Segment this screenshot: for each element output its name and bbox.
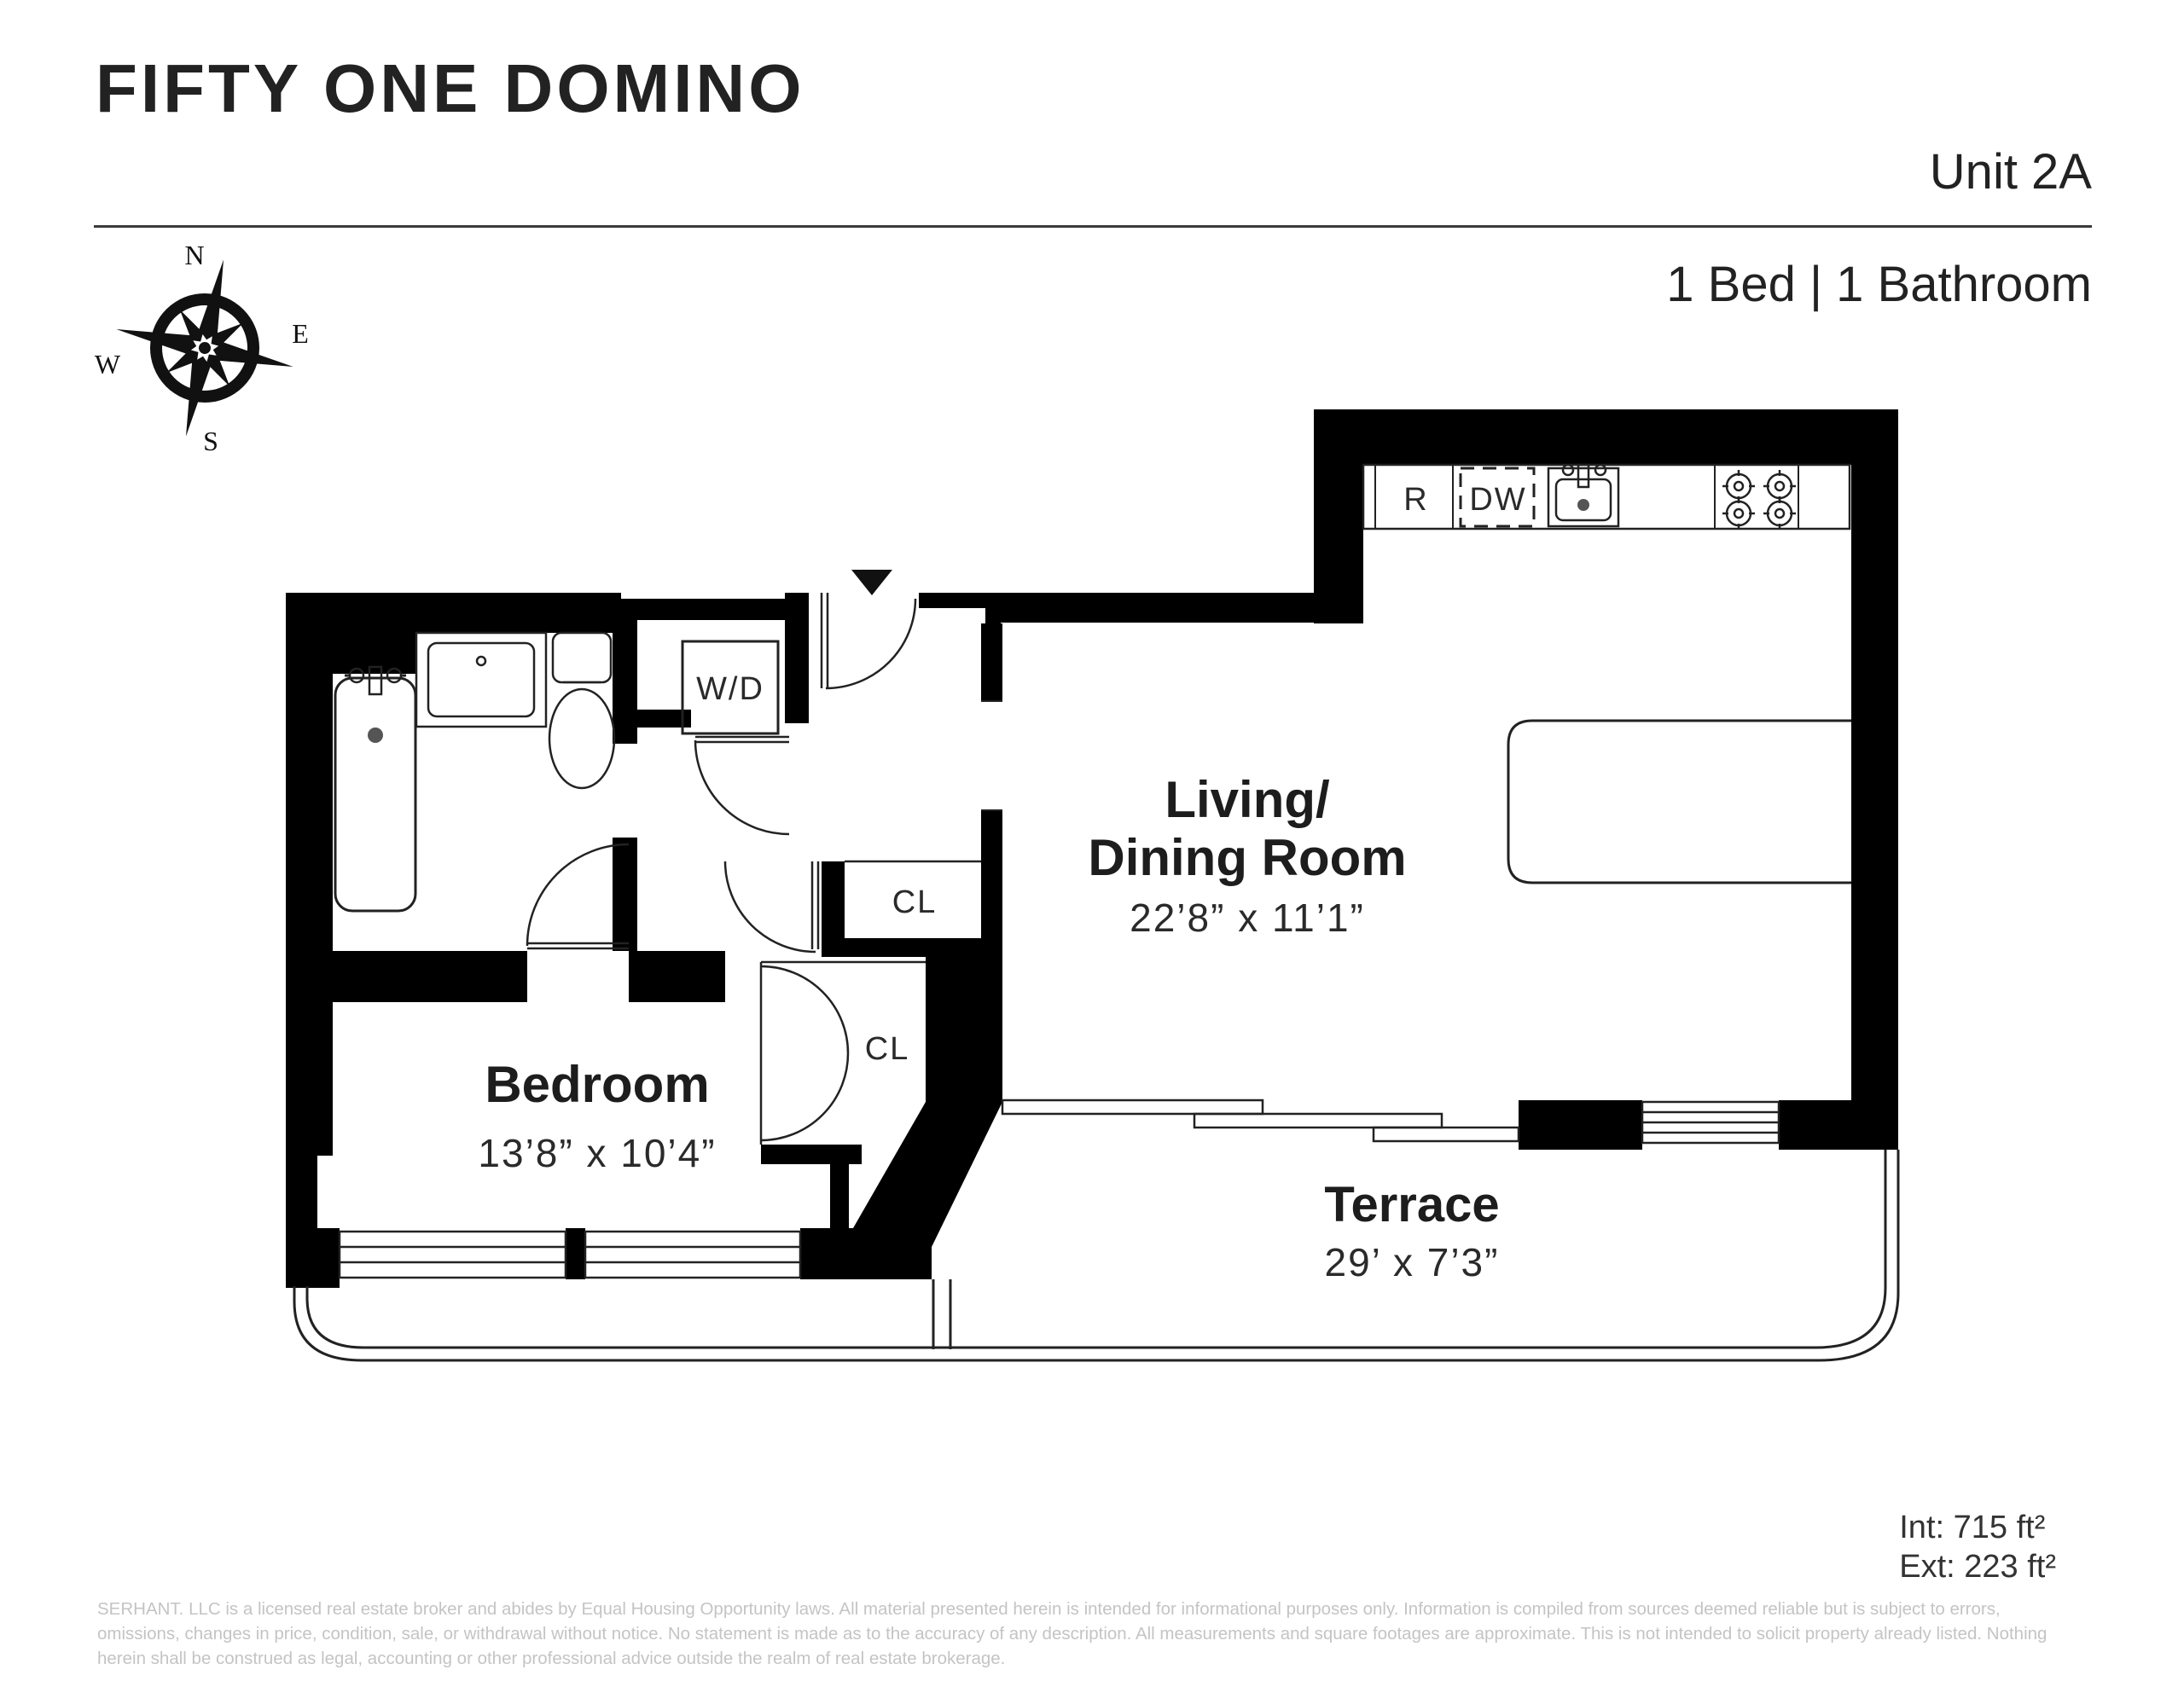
living-room-dims: 22’8” x 11’1” bbox=[1130, 896, 1365, 940]
kitchen-sink-icon bbox=[1548, 465, 1618, 526]
square-footage: Int: 715 ft² Ext: 223 ft² bbox=[1899, 1508, 2056, 1586]
bathroom-sink-icon bbox=[416, 633, 546, 727]
disclaimer-line-3: herein shall be construed as legal, acco… bbox=[97, 1646, 2094, 1671]
kitchen-island bbox=[1508, 721, 1851, 883]
bedroom-label: Bedroom bbox=[485, 1056, 709, 1113]
compass-east-label: E bbox=[292, 318, 309, 349]
dishwasher-label: DW bbox=[1469, 482, 1526, 518]
terrace-outline bbox=[294, 1150, 1898, 1360]
bedroom-dims: 13’8” x 10’4” bbox=[478, 1131, 716, 1175]
entry-arrow-icon bbox=[851, 570, 892, 595]
floorplan-drawing: N E W S bbox=[0, 0, 2184, 1687]
exterior-area: Ext: 223 ft² bbox=[1899, 1547, 2056, 1586]
compass-north-label: N bbox=[184, 240, 204, 270]
closet2-double-doors bbox=[761, 966, 848, 1140]
floorplan-page: FIFTY ONE DOMINO Unit 2A 1 Bed | 1 Bathr… bbox=[0, 0, 2184, 1687]
closet1-label: CL bbox=[892, 884, 938, 920]
entry-door bbox=[822, 593, 915, 688]
wd-door bbox=[695, 737, 789, 834]
toilet-icon bbox=[549, 633, 614, 788]
interior-area: Int: 715 ft² bbox=[1899, 1508, 2056, 1547]
bedroom-door bbox=[725, 861, 818, 952]
compass-west-label: W bbox=[95, 349, 121, 380]
living-window-sliders bbox=[1002, 1100, 1779, 1143]
washer-dryer-label: W/D bbox=[696, 671, 764, 707]
closet2-label: CL bbox=[865, 1031, 910, 1067]
legal-disclaimer: SERHANT. LLC is a licensed real estate b… bbox=[97, 1597, 2094, 1671]
stove-burners-icon bbox=[1722, 470, 1796, 530]
compass-south-label: S bbox=[203, 426, 218, 456]
refrigerator-label: R bbox=[1403, 482, 1428, 518]
disclaimer-line-2: omissions, changes in price, condition, … bbox=[97, 1621, 2094, 1646]
living-room-label-line2: Dining Room bbox=[1088, 829, 1406, 886]
living-room-label-line1: Living/ bbox=[1165, 771, 1330, 828]
terrace-dims: 29’ x 7’3” bbox=[1325, 1240, 1500, 1284]
terrace-label: Terrace bbox=[1324, 1177, 1499, 1232]
bathtub-icon bbox=[335, 667, 415, 911]
disclaimer-line-1: SERHANT. LLC is a licensed real estate b… bbox=[97, 1597, 2094, 1621]
compass-rose-icon: N E W S bbox=[95, 240, 312, 456]
